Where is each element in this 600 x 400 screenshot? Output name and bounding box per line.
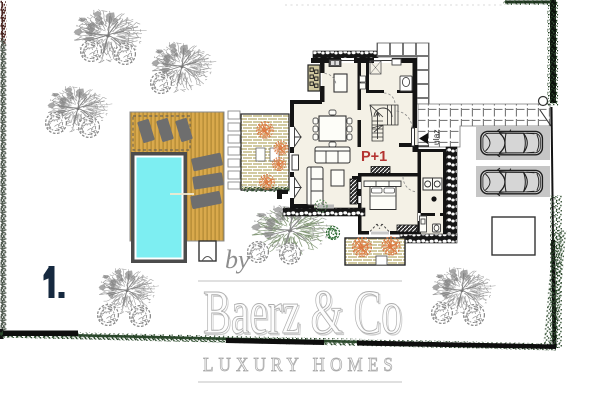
svg-text:by: by (225, 245, 250, 274)
svg-text:P+1: P+1 (361, 149, 387, 165)
svg-text:LUXURY HOMES: LUXURY HOMES (203, 354, 398, 376)
svg-text:ulaz: ulaz (431, 129, 441, 145)
